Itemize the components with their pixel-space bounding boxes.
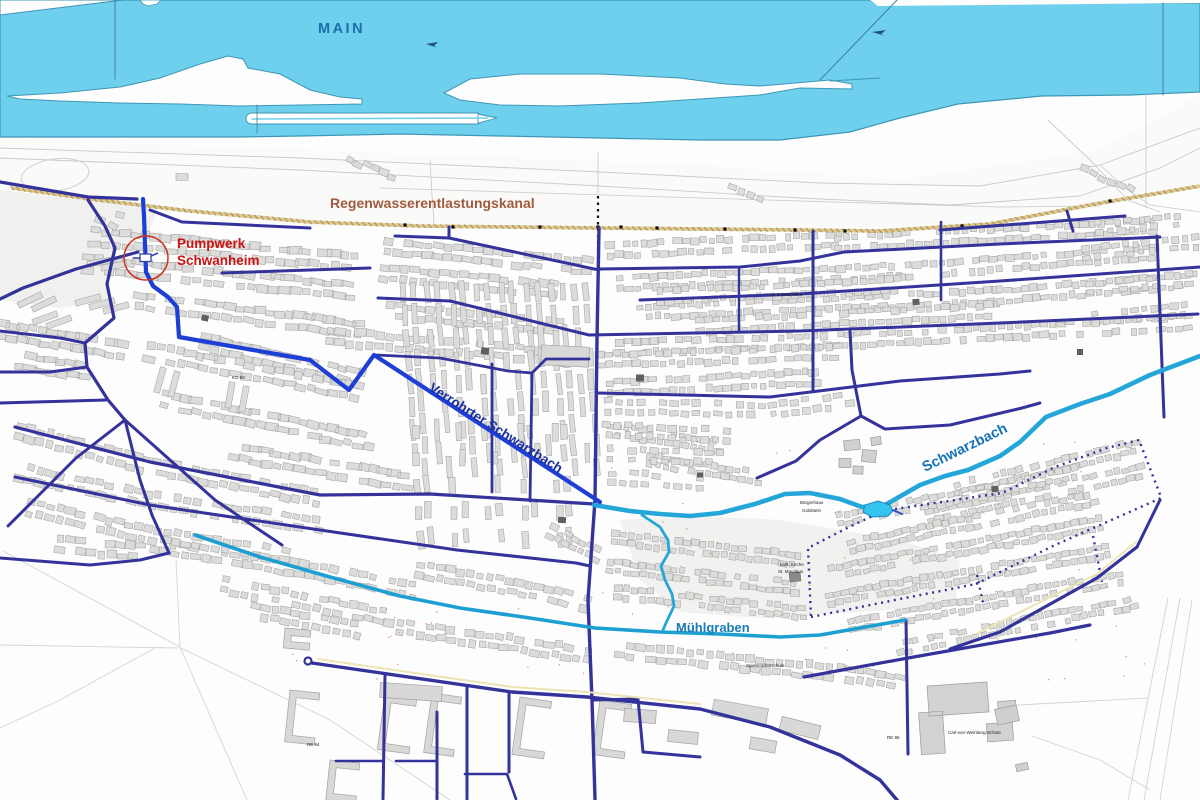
svg-text:Alt Schwanheim: Alt Schwanheim <box>770 292 803 297</box>
svg-text:Bürgerhaus: Bürgerhaus <box>800 500 824 505</box>
svg-text:MAIN: MAIN <box>318 21 365 37</box>
svg-text:RE 84: RE 84 <box>307 742 320 747</box>
svg-text:Goldstein: Goldstein <box>802 508 822 513</box>
svg-text:KG 60: KG 60 <box>232 375 245 380</box>
svg-text:Carl-von-Weinberg-Schule: Carl-von-Weinberg-Schule <box>948 730 1001 735</box>
svg-text:Mühlgraben: Mühlgraben <box>676 620 750 635</box>
svg-text:Schwanheim: Schwanheim <box>177 253 260 268</box>
svg-text:RE 86: RE 86 <box>887 735 900 740</box>
svg-text:kath. Kirche: kath. Kirche <box>780 562 804 567</box>
svg-text:Pumpwerk: Pumpwerk <box>177 236 246 251</box>
svg-text:St. Mauritius: St. Mauritius <box>778 569 804 574</box>
svg-text:Regenwasserentlastungskanal: Regenwasserentlastungskanal <box>330 195 535 211</box>
svg-text:Spielstraßenschule: Spielstraßenschule <box>746 663 785 668</box>
